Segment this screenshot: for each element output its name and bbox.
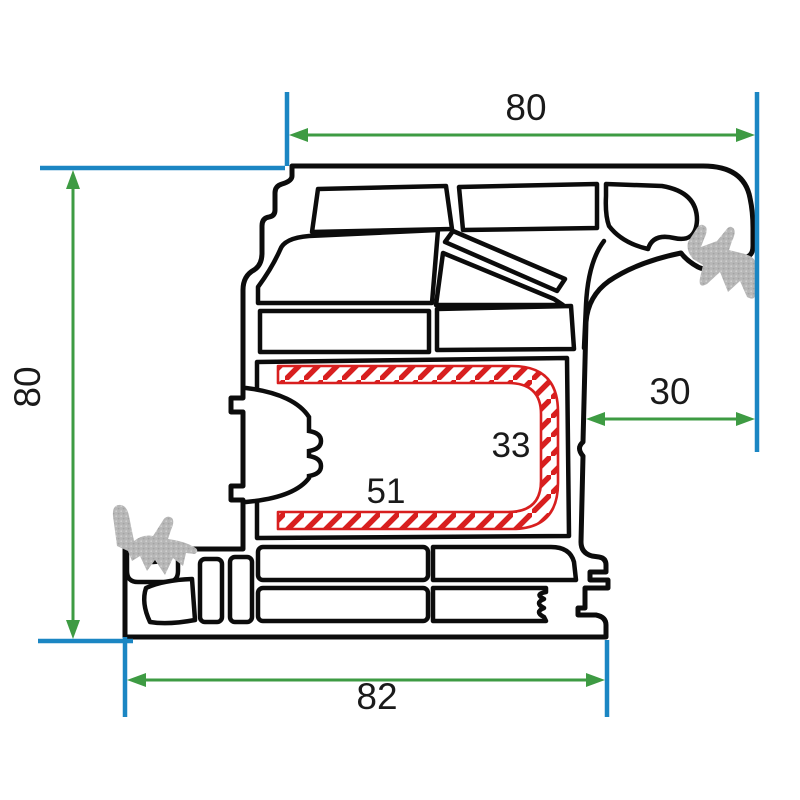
chamber-bottom-left-small [144,579,195,623]
chamber-third-right [437,306,574,350]
arrowhead-top [66,170,80,189]
label-steel-width: 51 [367,472,406,511]
chamber-top-middle [459,184,597,230]
chamber-bottom-row1-right [433,547,576,580]
arrowhead-right [736,412,755,426]
chamber-vertical-1 [200,559,222,622]
arrowhead-left [586,412,605,426]
label-bottom-width: 82 [356,676,397,717]
chamber-third-left [260,311,429,352]
chamber-bottom-row2-right [433,588,546,621]
chamber-vertical-2 [230,557,252,622]
label-right-depth: 30 [649,371,690,412]
arrowhead-bottom [66,620,80,639]
dimension-right-depth [586,412,755,426]
profile-drawing-page: 80 80 30 82 33 51 [0,0,800,800]
label-steel-height: 33 [492,426,531,465]
chamber-second-left [258,230,438,303]
arrowhead-left [127,673,146,687]
arrowhead-left [289,128,308,142]
dimension-left-height [66,170,80,639]
label-top-width: 80 [505,87,546,128]
dimension-top-width [289,128,755,142]
profile-cross-section-diagram: 80 80 30 82 33 51 [0,0,800,800]
label-left-height: 80 [7,366,48,407]
arrowhead-right [586,673,605,687]
chamber-top-left [312,186,452,232]
chamber-bottom-row1-left [258,547,428,580]
arrowhead-right [736,128,755,142]
chamber-bottom-row2-left [258,588,428,621]
